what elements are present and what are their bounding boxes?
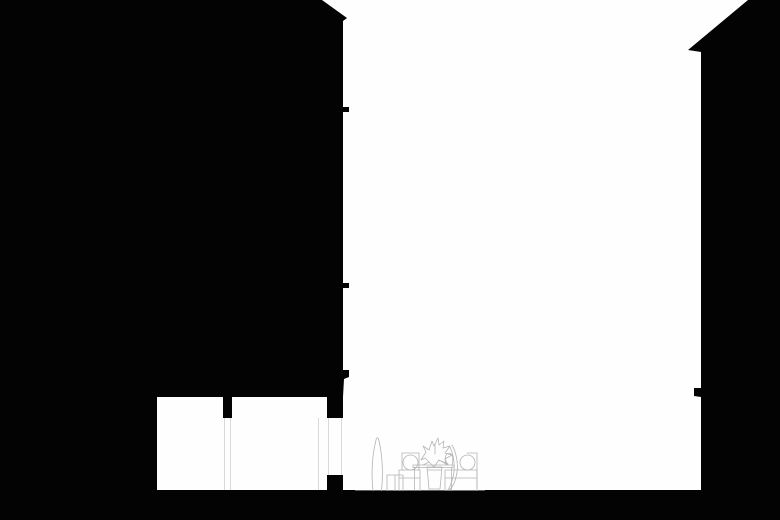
mullion-line <box>328 418 329 475</box>
stool <box>387 475 403 491</box>
basement-room-divider <box>223 397 232 418</box>
right-armchair <box>445 453 477 491</box>
right-building-mass <box>688 0 780 491</box>
basement-pier-sill <box>327 475 343 491</box>
mullion-line <box>224 418 225 490</box>
tall-vase <box>372 438 382 491</box>
furniture-line-drawing <box>355 432 485 491</box>
basement-pier-header <box>327 395 343 418</box>
mullion-line <box>230 418 231 490</box>
left-armchair <box>399 453 420 491</box>
mullion-line <box>341 418 342 475</box>
mullion-line <box>318 418 319 490</box>
ground-plane <box>0 490 780 520</box>
potted-plant <box>421 438 452 489</box>
left-building-mass <box>0 0 349 397</box>
section-drawing-canvas <box>0 0 780 520</box>
basement-left-wall <box>0 397 157 491</box>
